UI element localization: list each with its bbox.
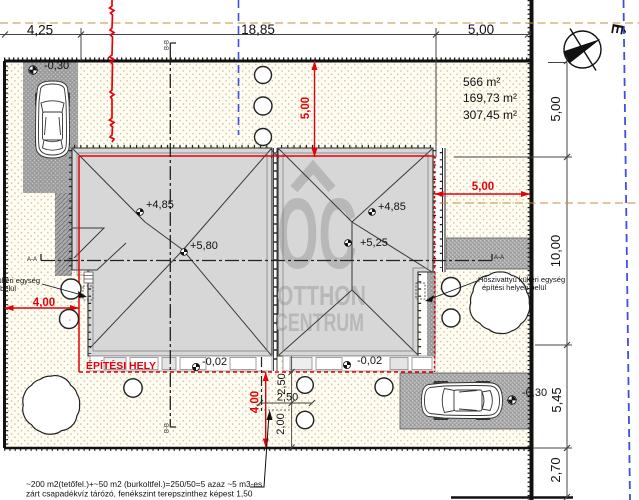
svg-text:-0,02: -0,02 [202,356,227,368]
svg-text:~200 m2(tetőfel.)+~50 m2 (burk: ~200 m2(tetőfel.)+~50 m2 (burkoltfel.)=2… [26,479,262,489]
svg-text:2,50: 2,50 [277,392,298,404]
svg-text:5,45: 5,45 [549,387,564,412]
svg-text:+4,85: +4,85 [146,199,174,211]
svg-text:4,25: 4,25 [27,23,53,38]
svg-text:-0,30: -0,30 [522,387,547,399]
svg-text:B-B: B-B [165,423,171,433]
svg-text:+5,80: +5,80 [190,240,218,252]
svg-text:566 m²: 566 m² [463,75,500,89]
svg-text:18,85: 18,85 [241,22,275,37]
svg-text:5,00: 5,00 [472,181,494,193]
svg-text:OTTHON: OTTHON [277,280,366,311]
svg-text:-0,30: -0,30 [44,60,69,72]
svg-text:OC: OC [277,178,357,290]
svg-text:+4,85: +4,85 [378,201,406,213]
svg-text:10,00: 10,00 [548,235,563,268]
svg-text:5,00: 5,00 [548,96,563,121]
svg-text:A-A: A-A [494,255,504,261]
svg-text:307,45 m²: 307,45 m² [463,108,517,122]
svg-text:4,00: 4,00 [33,297,55,309]
svg-text:5,00: 5,00 [300,97,312,119]
svg-text:A-A: A-A [27,257,37,263]
svg-text:4,00: 4,00 [250,391,262,413]
svg-text:építési helyen belül: építési helyen belül [0,284,16,293]
svg-text:2,70: 2,70 [548,457,563,482]
svg-text:+5,25: +5,25 [360,237,388,249]
svg-text:ÉPÍTÉSI HELY: ÉPÍTÉSI HELY [86,359,156,372]
svg-text:zárt csapadékvíz tárózó, fenék: zárt csapadékvíz tárózó, fenékszint tere… [26,489,253,499]
svg-text:2,00: 2,00 [275,413,287,434]
svg-text:CENTRUM: CENTRUM [275,309,364,337]
svg-text:-0,02: -0,02 [357,355,382,367]
svg-text:építési helyen belül: építési helyen belül [482,283,547,292]
svg-text:169,73 m²: 169,73 m² [463,91,517,105]
svg-text:5,00: 5,00 [468,22,494,37]
svg-text:B-B: B-B [165,40,171,50]
